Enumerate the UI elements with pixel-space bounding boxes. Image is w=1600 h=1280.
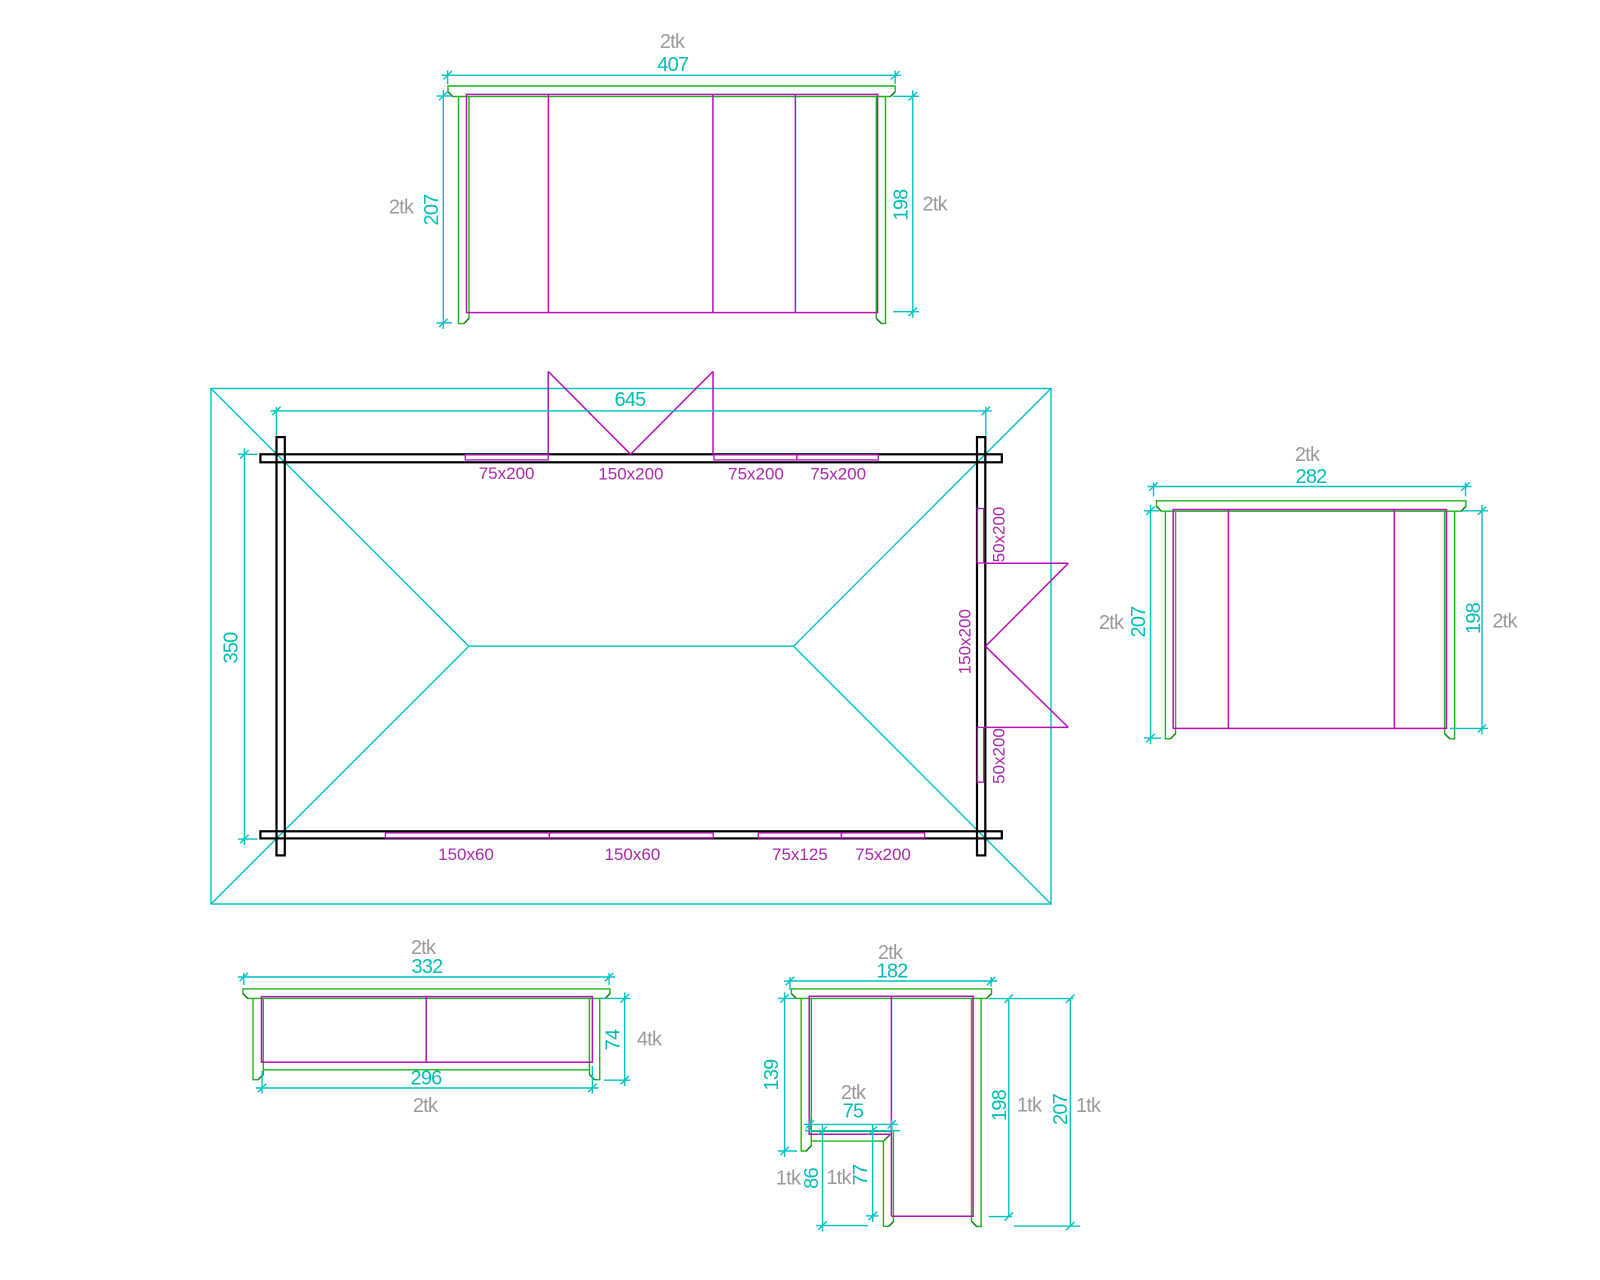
svg-text:50x200: 50x200 bbox=[990, 728, 1009, 784]
svg-text:2tk: 2tk bbox=[1295, 444, 1321, 466]
svg-text:75x125: 75x125 bbox=[772, 845, 828, 864]
svg-text:4tk: 4tk bbox=[637, 1029, 663, 1051]
svg-text:75x200: 75x200 bbox=[810, 465, 866, 484]
svg-text:50x200: 50x200 bbox=[990, 507, 1009, 563]
svg-text:2tk: 2tk bbox=[389, 197, 415, 219]
svg-text:207: 207 bbox=[1050, 1093, 1072, 1125]
svg-text:139: 139 bbox=[761, 1059, 783, 1091]
svg-text:2tk: 2tk bbox=[413, 1095, 439, 1117]
svg-text:86: 86 bbox=[801, 1168, 823, 1189]
svg-text:75: 75 bbox=[843, 1101, 864, 1123]
svg-text:207: 207 bbox=[421, 194, 443, 226]
svg-text:182: 182 bbox=[877, 961, 909, 983]
svg-text:2tk: 2tk bbox=[660, 31, 686, 53]
svg-text:207: 207 bbox=[1128, 606, 1150, 638]
svg-text:74: 74 bbox=[603, 1029, 625, 1050]
svg-text:198: 198 bbox=[1463, 602, 1485, 634]
svg-text:75x200: 75x200 bbox=[479, 464, 535, 483]
svg-text:198: 198 bbox=[891, 189, 913, 221]
svg-text:75x200: 75x200 bbox=[728, 465, 784, 484]
svg-text:150x200: 150x200 bbox=[598, 465, 663, 484]
svg-text:282: 282 bbox=[1296, 466, 1328, 488]
svg-text:332: 332 bbox=[412, 956, 444, 978]
svg-text:150x200: 150x200 bbox=[955, 609, 974, 674]
svg-text:1tk: 1tk bbox=[826, 1167, 852, 1189]
svg-text:1tk: 1tk bbox=[1076, 1095, 1102, 1117]
svg-text:150x60: 150x60 bbox=[605, 845, 661, 864]
svg-text:77: 77 bbox=[850, 1164, 872, 1185]
svg-text:645: 645 bbox=[615, 389, 647, 411]
svg-text:75x200: 75x200 bbox=[855, 845, 911, 864]
svg-text:2tk: 2tk bbox=[1492, 611, 1518, 633]
svg-text:350: 350 bbox=[221, 632, 243, 664]
svg-text:407: 407 bbox=[657, 54, 689, 76]
svg-text:1tk: 1tk bbox=[1017, 1095, 1043, 1117]
svg-text:150x60: 150x60 bbox=[438, 845, 494, 864]
svg-text:2tk: 2tk bbox=[1099, 612, 1125, 634]
svg-text:296: 296 bbox=[411, 1068, 443, 1090]
svg-text:1tk: 1tk bbox=[776, 1168, 802, 1190]
svg-text:198: 198 bbox=[989, 1089, 1011, 1121]
svg-text:2tk: 2tk bbox=[923, 194, 949, 216]
